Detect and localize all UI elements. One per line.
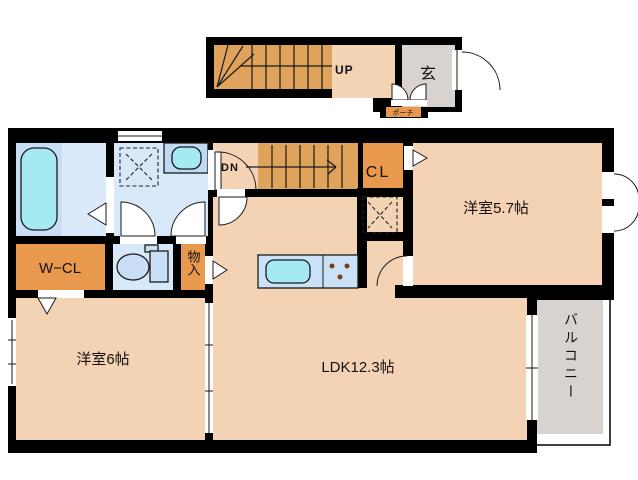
balcony-label: バルコニー bbox=[563, 312, 579, 402]
storage-label: 物入 bbox=[186, 250, 201, 276]
stove-burner bbox=[338, 275, 343, 280]
entrance-threshold bbox=[391, 100, 427, 106]
washroom-door-opening bbox=[208, 150, 215, 190]
staircase-up-area bbox=[214, 45, 332, 89]
up-label: UP bbox=[335, 63, 354, 77]
floor-plan-canvas: UP 玄 ポーチ bbox=[0, 0, 638, 480]
wcl-door-opening bbox=[38, 290, 84, 298]
bathroom-floor bbox=[62, 143, 106, 236]
dn-label: DN bbox=[221, 162, 239, 174]
bathroom-door-opening bbox=[106, 177, 114, 233]
upper-floor-plan: UP 玄 ポーチ bbox=[206, 37, 500, 118]
washroom-south-door-opening bbox=[176, 236, 206, 244]
balcony-sliding-window bbox=[526, 315, 538, 420]
storage-door-opening bbox=[205, 256, 213, 284]
hall-ldk-door-opening bbox=[217, 189, 245, 197]
genkan-window-swing-arc bbox=[462, 52, 500, 90]
ldk-label: LDK12.3帖 bbox=[321, 359, 394, 376]
wall bbox=[395, 285, 614, 298]
bedroom-5-7-door-opening bbox=[403, 256, 413, 286]
stove-burner bbox=[330, 264, 335, 269]
staircase-down-area bbox=[258, 143, 358, 189]
cl-label: CL bbox=[366, 164, 390, 181]
kitchen-sink bbox=[266, 260, 310, 283]
floor-plan-page: UP 玄 ポーチ bbox=[0, 0, 638, 480]
bedroom-6-area bbox=[16, 298, 205, 440]
porch-label: ポーチ bbox=[393, 109, 414, 117]
cl-door-opening bbox=[404, 146, 413, 170]
kitchen-counter bbox=[258, 255, 358, 288]
bedroom-6-sliding-door bbox=[205, 303, 213, 433]
vanity-sink bbox=[172, 147, 201, 169]
main-floor-plan: DN CL 洋室5.7帖 W−CL 物入 洋室6帖 LDK12.3帖 バルコニー bbox=[8, 128, 638, 453]
stove-burner bbox=[345, 264, 350, 269]
wall bbox=[403, 188, 413, 258]
bedroom-6-window bbox=[8, 318, 16, 386]
wcl-label: W−CL bbox=[39, 260, 81, 277]
toilet-door-opening bbox=[120, 236, 157, 244]
bathtub bbox=[21, 148, 57, 230]
genkan-label: 玄 bbox=[420, 65, 436, 83]
bedroom-6-label: 洋室6帖 bbox=[76, 351, 129, 368]
bedroom-5-7-label: 洋室5.7帖 bbox=[463, 200, 529, 217]
